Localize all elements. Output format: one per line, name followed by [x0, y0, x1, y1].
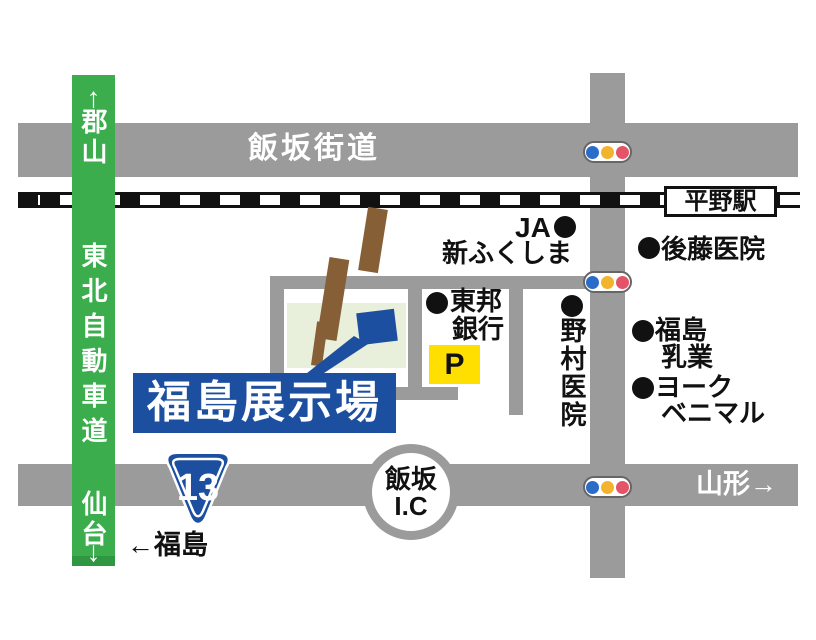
location-dot: [638, 237, 660, 259]
location-dot: [632, 377, 654, 399]
poi-nomura-clinic: 野村医院: [556, 317, 588, 429]
traffic-signal-icon: [583, 271, 632, 293]
road-site-right: [408, 276, 422, 400]
poi-ja-line2: 新ふくしま: [442, 239, 572, 267]
signal-red-dot: [616, 276, 629, 289]
road-iizaka-kaido: [18, 123, 798, 177]
station-hirano: 平野駅: [664, 186, 777, 217]
venue-site-area: [287, 303, 406, 368]
road-label-fukushima: ←福島: [127, 531, 208, 559]
expressway-dest-top: 郡山: [72, 108, 115, 168]
location-dot: [554, 216, 576, 238]
dirt-road-segment-upper: [358, 207, 388, 273]
traffic-signal-icon: [583, 476, 632, 498]
signal-blue-dot: [586, 481, 599, 494]
signal-red-dot: [616, 481, 629, 494]
poi-toho-bank-line1: 東邦: [450, 287, 502, 315]
parking-icon: P: [429, 345, 480, 384]
poi-york-benimaru-line2: ベニマル: [661, 399, 765, 427]
traffic-signal-icon: [583, 141, 632, 163]
road-label-iizaka-kaido: 飯坂街道: [248, 135, 380, 163]
poi-york-benimaru-line1: ヨーク: [655, 373, 733, 401]
signal-blue-dot: [586, 146, 599, 159]
map-canvas: ↑ 郡山 東北自動車道 仙台 ↓ 飯坂街道 山形→ ←福島 平野駅 福島展示場 …: [0, 0, 816, 640]
location-dot: [426, 292, 448, 314]
route-13-shield: 13: [158, 450, 238, 530]
signal-red-dot: [616, 146, 629, 159]
interchange-line2: I.C: [372, 493, 450, 520]
location-dot: [561, 295, 583, 317]
location-dot: [632, 320, 654, 342]
poi-goto-clinic: 後藤医院: [661, 235, 765, 263]
poi-toho-bank-line2: 銀行: [452, 315, 504, 343]
signal-yellow-dot: [601, 481, 614, 494]
arrow-down-icon: ↓: [72, 536, 115, 568]
poi-fukushima-nyugyo-line1: 福島: [655, 316, 707, 344]
signal-blue-dot: [586, 276, 599, 289]
iizaka-interchange: 飯坂 I.C: [363, 444, 459, 540]
signal-yellow-dot: [601, 146, 614, 159]
road-middle: [270, 276, 625, 289]
interchange-line1: 飯坂: [372, 466, 450, 493]
signal-yellow-dot: [601, 276, 614, 289]
poi-fukushima-nyugyo-line2: 乳業: [661, 343, 713, 371]
route-number: 13: [177, 467, 219, 509]
venue-label: 福島展示場: [133, 373, 396, 433]
road-parking-right: [509, 276, 523, 415]
road-label-yamagata: 山形→: [696, 470, 777, 498]
expressway-name: 東北自動車道: [72, 242, 115, 452]
